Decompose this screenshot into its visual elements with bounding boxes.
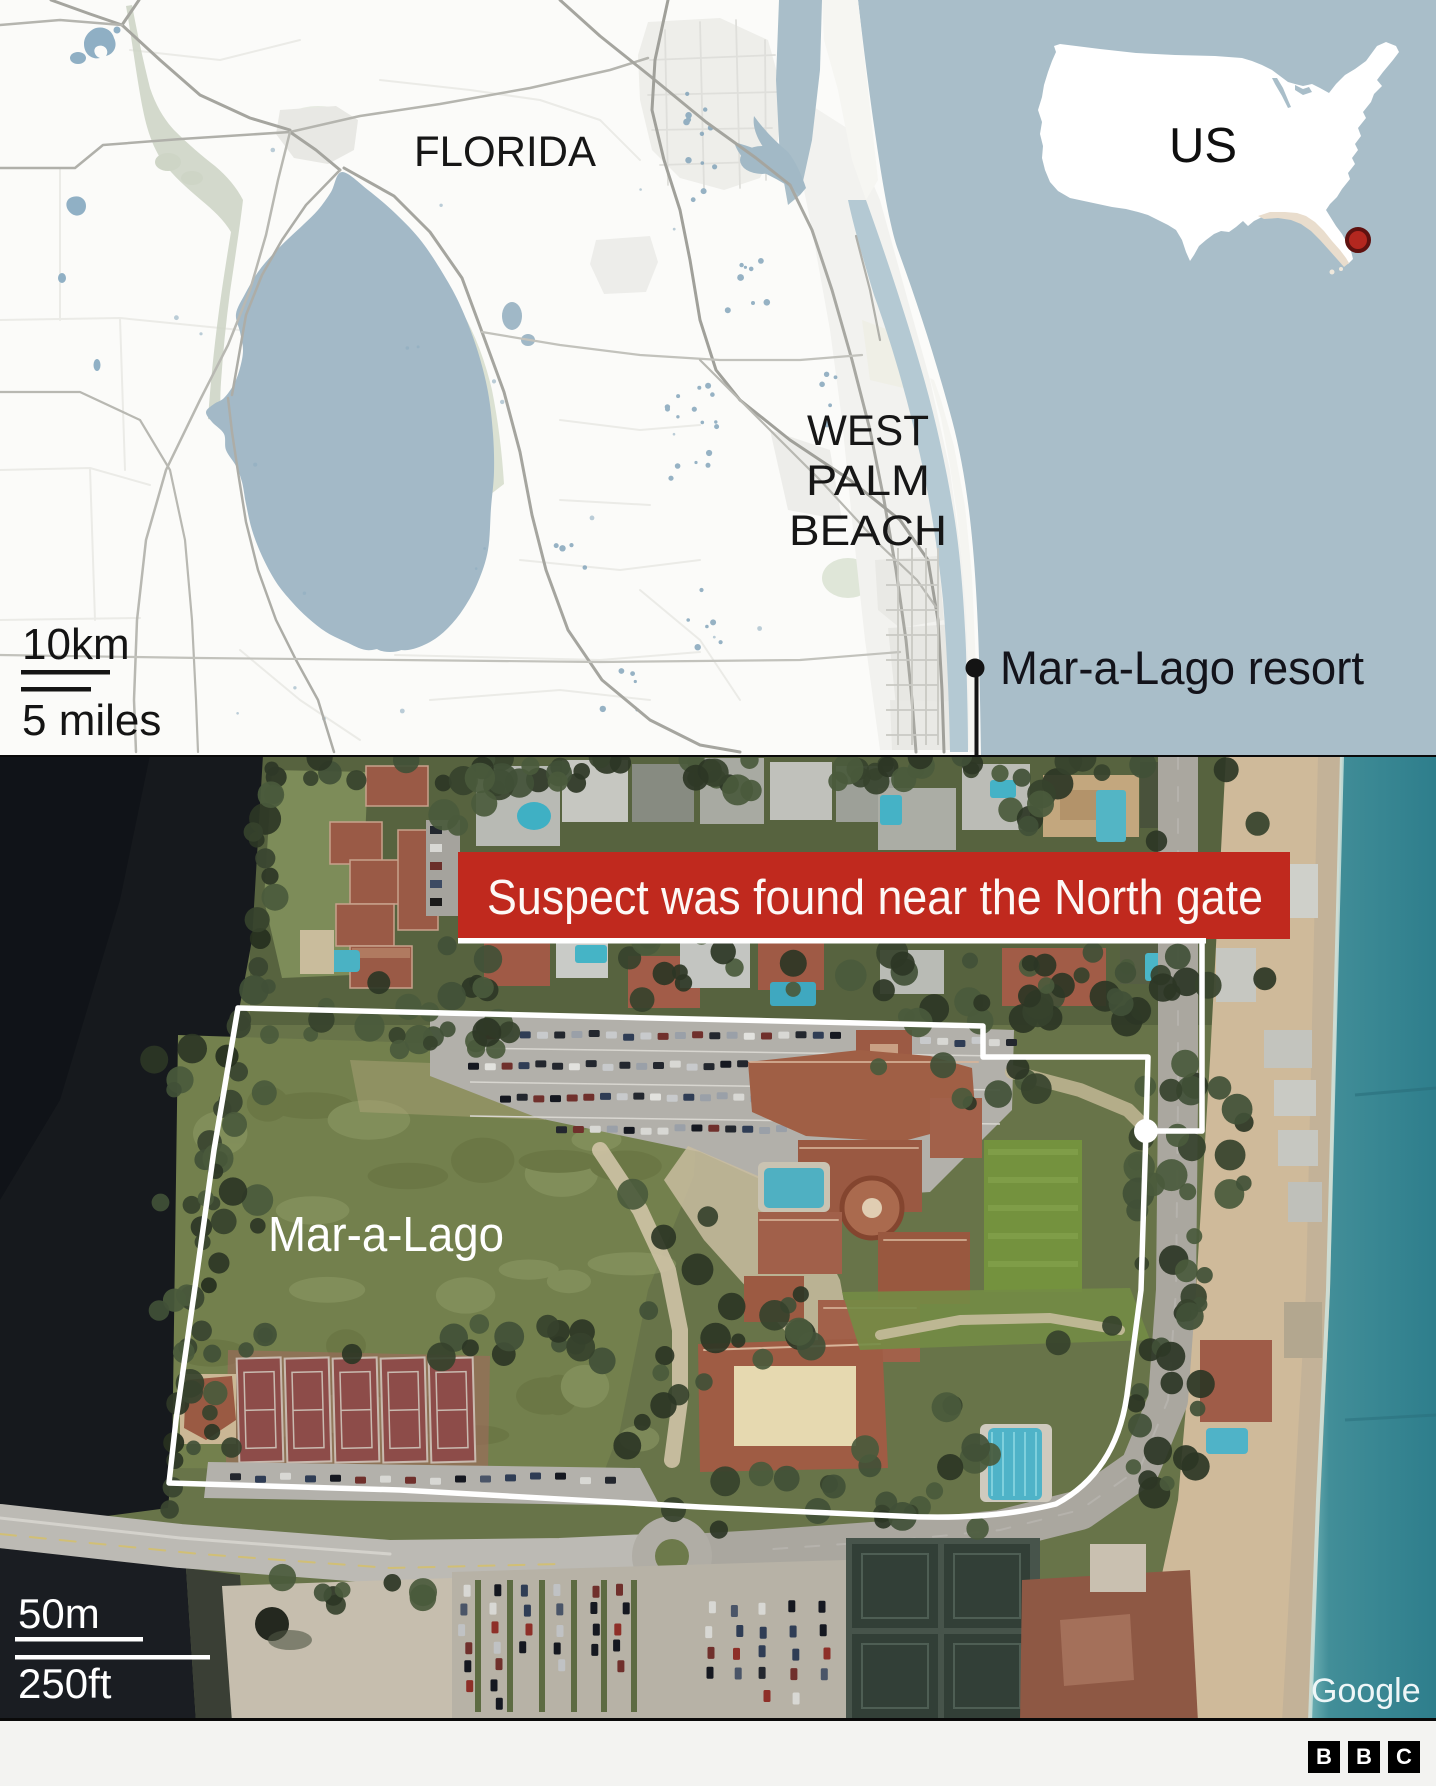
svg-text:5 miles: 5 miles	[22, 696, 161, 745]
svg-text:FLORIDA: FLORIDA	[414, 128, 596, 176]
svg-text:10km: 10km	[22, 620, 130, 669]
svg-text:Suspect was found near the Nor: Suspect was found near the North gate	[487, 871, 1263, 925]
svg-text:Mar-a-Lago: Mar-a-Lago	[268, 1208, 504, 1262]
svg-text:250ft: 250ft	[18, 1660, 112, 1707]
svg-text:Google: Google	[1311, 1672, 1421, 1710]
svg-text:50m: 50m	[18, 1590, 100, 1637]
svg-text:US: US	[1169, 119, 1237, 173]
svg-text:PALM: PALM	[806, 457, 930, 505]
svg-text:Mar-a-Lago resort: Mar-a-Lago resort	[1000, 641, 1364, 694]
svg-text:WEST: WEST	[807, 407, 929, 455]
svg-text:BEACH: BEACH	[789, 507, 947, 555]
